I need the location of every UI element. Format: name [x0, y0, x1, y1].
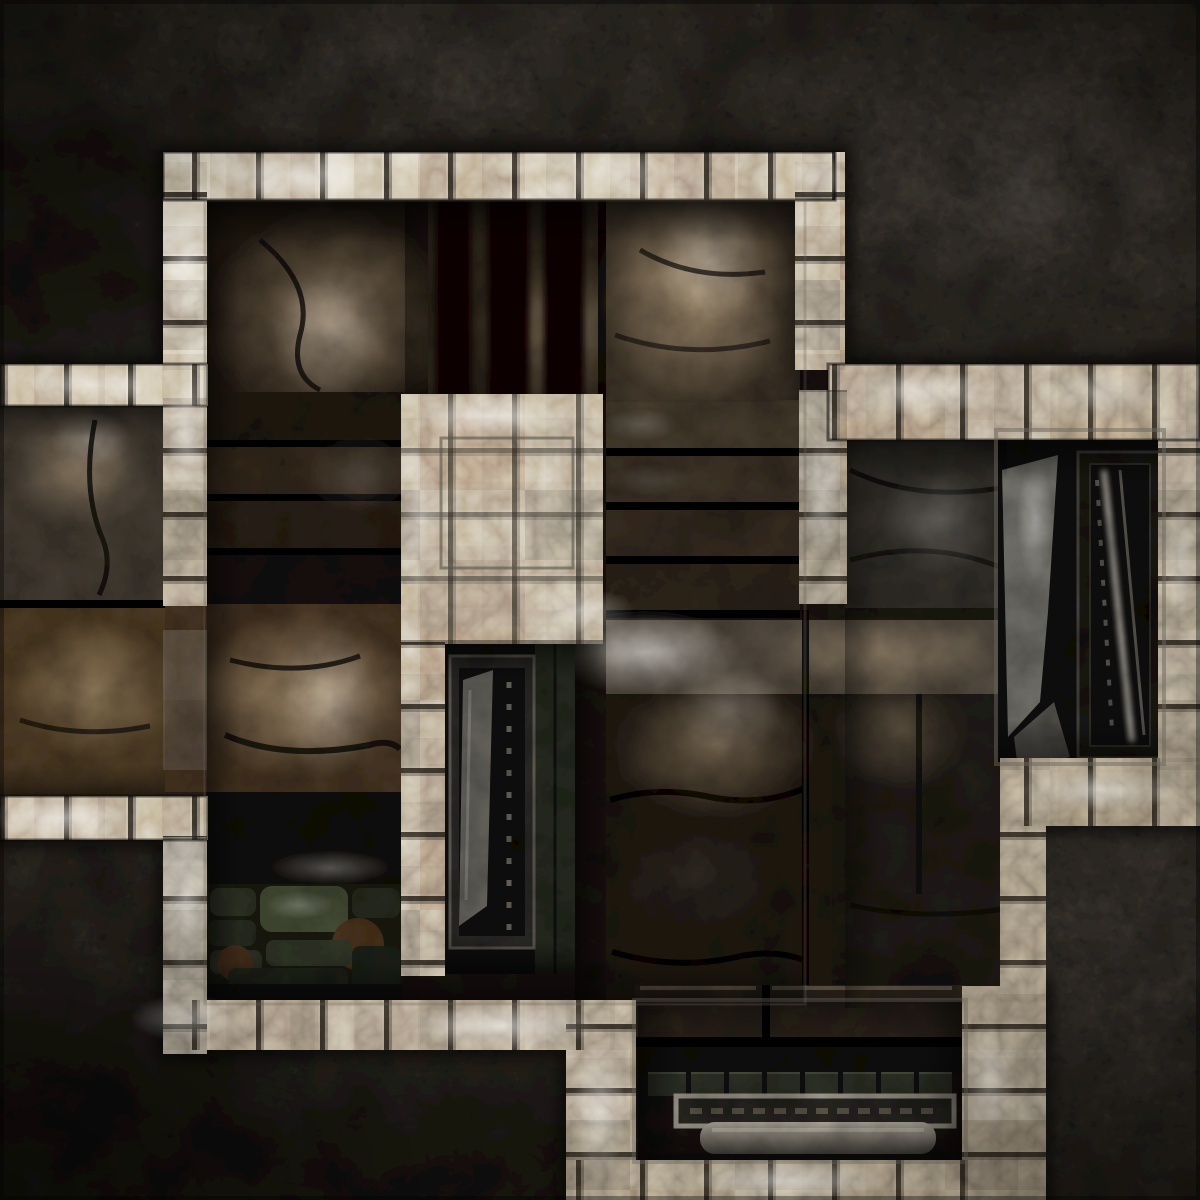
east-grand-stairs	[600, 402, 800, 618]
map-canvas: Top-down dungeon battle-map tile	[0, 0, 1200, 1200]
dungeon-map-tile: Top-down dungeon battle-map tile	[0, 0, 1200, 1200]
ne-alcove	[998, 432, 1164, 770]
toppled-shelf	[1078, 452, 1162, 758]
sarcophagus	[450, 656, 534, 948]
west-antechamber-slabs	[0, 406, 180, 796]
coffin-niche	[443, 644, 575, 974]
slab-highlight	[268, 850, 392, 886]
